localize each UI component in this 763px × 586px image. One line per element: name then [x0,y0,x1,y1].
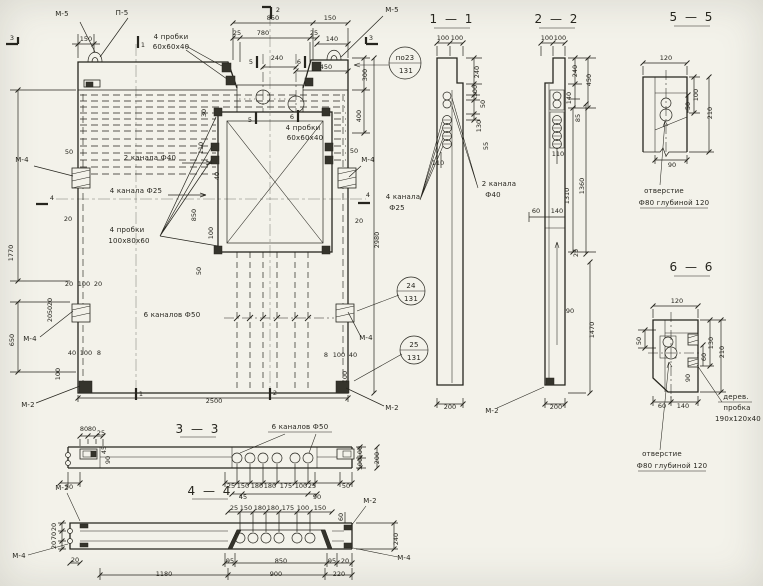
mark-m2-left: М-2 [21,401,35,409]
flag-5-mid: 5 [248,116,252,124]
label-6-channels-f50: 6 каналов Ф50 [144,311,201,319]
dim-label: 20 [64,215,72,223]
lifting-loop-right [327,50,341,60]
dim-label: 120 [671,297,683,305]
dim-label: 110 [197,142,205,154]
dim-label: 90 [313,493,321,501]
dim-label: Ф80 глубиной 120 [637,462,708,470]
dim-label: 140 [565,92,573,104]
section-title-4-4: 4 — 4 [188,484,233,498]
dim-label: 100 [541,34,553,42]
dim-label: 130 [475,120,483,132]
dim-label: 200 [444,403,456,411]
dim-label: 20 [94,280,102,288]
dim-label: пробка [723,404,750,412]
dim-label: 150 [314,504,326,512]
dim-label: 100 [437,34,449,42]
dim-label: 1360 [578,178,586,195]
dim-label: 25 [230,504,238,512]
dim-label: 140 [326,35,338,43]
flag-4-left: 4 [50,194,54,202]
label-hole-66: отверстие [642,450,682,458]
dim-label: 90 [668,161,676,169]
dim-label: 100 [554,34,566,42]
dim-label: 50 [684,102,692,110]
mark-p5: П-5 [116,9,129,17]
dim-label: 8 [324,351,328,359]
section-title-2-2: 2 — 2 [535,12,580,26]
dim-label: 1180 [156,570,173,578]
dim-label: 190х120х40 [715,415,761,423]
dim-label: 131 [407,354,421,362]
dim-label: 60 [700,353,708,361]
dim-label: 240 [271,54,283,62]
dim-label: 100 [356,458,364,470]
mark-m5-left: М-5 [55,10,69,18]
label-6-channels-33: 6 каналов Ф50 [272,423,329,431]
section-title-5-5: 5 — 5 [670,10,715,24]
dim-label: 180 [254,504,266,512]
dim-label: 150 [80,35,92,43]
dim-label: 131 [404,295,418,303]
dim-label: Ф25 [389,204,405,212]
dim-label: 850 [267,14,279,22]
section-4-4 [28,493,398,580]
dim-label: 20 [50,541,58,549]
label-2-channels-f40: 2 канала Ф40 [124,154,176,162]
dim-label: 55 [482,142,490,150]
dim-label: Ф80 глубиной 120 [639,199,710,207]
flag-6-top: 6 [297,58,301,66]
dim-label: 60 [658,402,666,410]
dim-label: 1470 [588,322,596,339]
mark-m2-s22: М-2 [485,407,499,415]
dim-label: 60 [532,207,540,215]
dim-label: 100 [451,34,463,42]
label-2-channels-s11: 2 канала [482,180,516,188]
section-2-2 [497,28,596,408]
dim-label: 20 [46,314,54,322]
dim-label: 90 [566,307,574,315]
dim-label: 2980 [373,232,381,249]
dim-label: 50 [635,337,643,345]
dim-label: 110 [432,159,444,167]
dim-label: 60х60х40 [153,43,190,51]
section-title-3-3: 3 — 3 [176,422,221,436]
dim-label: 175 [280,482,292,490]
dim-label: 150 [237,482,249,490]
dim-label: 50 [350,147,358,155]
callout-po23: по23 [396,54,415,62]
dim-label: 70 [50,532,58,540]
dim-label: 40 [349,351,357,359]
mark-m4-left-bottom: М-4 [23,335,37,343]
dim-label: 25 [233,29,241,37]
dim-label: 300 [361,69,369,81]
dim-label: 20 [65,280,73,288]
dim-label: 240 [571,65,579,77]
dim-label: 175 [282,504,294,512]
mark-m2-44-left: М-2 [55,484,69,492]
flag-2-top: 2 [276,6,280,14]
dim-label: 900 [270,570,282,578]
dim-label: 850 [275,557,287,565]
dim-label: 40 [213,172,221,180]
dim-label: 100 [295,482,307,490]
dim-label: 95 [226,557,234,565]
dim-label: 100 [297,504,309,512]
label-4-channels-s11: 4 канала [386,193,420,201]
dim-label: 20 [341,557,349,565]
dim-label: 90 [104,456,112,464]
flag-5-top: 5 [249,58,253,66]
dim-label: 45 [239,493,247,501]
callout-24: 24 [406,282,416,290]
section-title-1-1: 1 — 1 [430,12,475,26]
dim-label: 40 [68,349,76,357]
dim-label: 240 [473,66,481,78]
mark-m5-right: М-5 [385,6,399,14]
label-4-channels-f25: 4 канала Ф25 [110,187,162,195]
label-4-plugs-opening: 4 пробки [110,226,145,234]
label-4-plugs-inner: 4 пробки [286,124,321,132]
channel-lines-vertical [237,252,308,390]
dim-label: 130 [707,337,715,349]
dim-label: 450 [585,74,593,86]
dim-label: 20 [355,217,363,225]
dim-label: 50 [65,148,73,156]
dim-label: 450 [320,63,332,71]
dim-label: 150 [324,14,336,22]
dim-label: 85 [574,114,582,122]
dim-label: 100 [341,371,349,383]
mark-m4-left-top: М-4 [15,156,29,164]
channel-holes-s33 [232,453,313,463]
dim-label: 400 [355,110,363,122]
dim-label: 20 [46,298,54,306]
label-wood-plug: дерев. [723,393,748,401]
callout-circles [354,47,428,381]
dim-label: 100 [78,280,90,288]
dim-label: 2500 [206,397,223,405]
dim-label: 150 [240,504,252,512]
channel-holes-s44 [235,533,315,543]
dim-label: 180 [267,504,279,512]
dim-label: 210 [706,107,714,119]
dim-label: 25 [310,29,318,37]
dim-label: 100 [54,368,62,380]
mark-m4-44-right: М-4 [397,554,411,562]
dim-label: 90 [684,374,692,382]
drawing-sheet: М-5П-5312М-5385015015025780251404 пробки… [0,0,763,586]
dim-label: 8 [97,349,101,357]
dim-label: 240 [392,533,400,545]
main-elevation-view [6,7,428,406]
dim-label: 25 [97,429,105,437]
dim-label: 850 [190,209,198,221]
dim-label: 120 [660,54,672,62]
flag-3-left: 3 [10,34,14,42]
section-6-6 [638,276,752,471]
dim-label: 20 [71,556,79,564]
channel-holes-s22 [553,92,562,149]
corner-plate-m2-left [79,381,92,393]
dim-label: 50 [479,100,487,108]
mark-m4-right-top: М-4 [361,156,375,164]
dim-label: 200 [373,452,381,464]
dim-label: 110 [552,150,564,158]
dim-label: 1310 [563,188,571,205]
dim-label: 95 [328,557,336,565]
label-4-plugs-top: 4 пробки [154,33,189,41]
dim-label: 140 [677,402,689,410]
flag-4-right: 4 [366,191,370,199]
flag-3-right: 3 [369,34,373,42]
dim-label: 650 [8,334,16,346]
section-title-6-6: 6 — 6 [670,260,715,274]
dim-label: 50 [195,267,203,275]
dim-label: 180 [264,482,276,490]
mark-m4-right-bottom: М-4 [359,334,373,342]
dim-label: 100 [333,351,345,359]
dim-label: Ф40 [485,191,501,199]
dim-label: 1770 [7,245,15,262]
label-hole-55: отверстие [644,187,684,195]
dim-label: 100 [80,349,92,357]
panel-working-drawing: М-5П-5312М-5385015015025780251404 пробки… [0,0,763,586]
dim-label: 131 [399,67,413,75]
dim-label: 100х80х60 [108,237,149,245]
flag-1-top: 1 [141,41,145,49]
dim-label: 100 [356,446,364,458]
annotations-layer: М-5П-5312М-5385015015025780251404 пробки… [7,6,761,578]
dim-label: 140 [551,207,563,215]
flag-2-bottom: 2 [273,389,277,397]
dim-label: 100 [471,85,479,97]
callout-25: 25 [409,341,418,349]
mark-m4-44-left: М-4 [12,552,26,560]
dim-label: 180 [251,482,263,490]
dim-label: 60х60х40 [287,134,324,142]
mark-m2-44-right: М-2 [363,497,377,505]
dim-label: 50 [46,306,54,314]
section-5-5 [640,26,714,208]
dim-label: 210 [718,346,726,358]
dim-label: 220 [333,570,345,578]
dim-label: 25 [308,482,316,490]
dim-label: 200 [550,403,562,411]
mark-m2-right: М-2 [385,404,399,412]
lifting-loop-left [88,52,102,62]
dim-label: 80 [88,425,96,433]
dim-label: 30 [200,109,208,117]
dim-label: 25 [572,249,580,257]
dim-label: 100 [207,227,215,239]
dim-label: 100 [692,89,700,101]
dim-label: 780 [257,29,269,37]
dim-label: 60 [337,513,345,521]
flag-1-bottom: 1 [139,390,143,398]
channel-holes-s11 [443,92,452,149]
flag-6-mid: 6 [290,113,294,121]
dim-label: 20 [50,523,58,531]
dim-label: 50 [342,482,350,490]
dim-label: 45 [100,446,108,454]
